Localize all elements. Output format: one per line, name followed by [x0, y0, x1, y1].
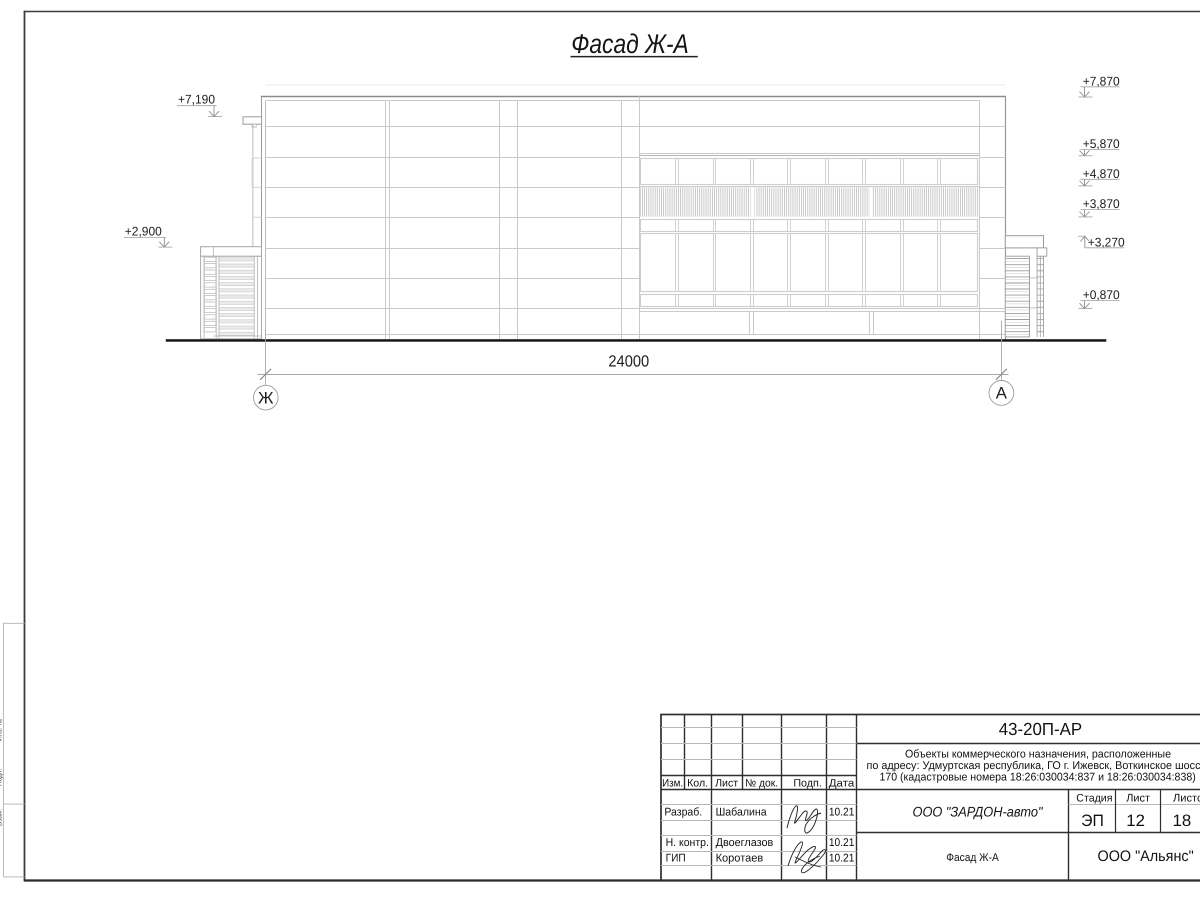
svg-text:Объекты коммерческого назначен: Объекты коммерческого назначения, распол… — [905, 749, 1171, 761]
svg-text:170 (кадастровые номера 18:26:: 170 (кадастровые номера 18:26:030034:837… — [879, 772, 1196, 784]
svg-text:Фасад Ж-А: Фасад Ж-А — [946, 852, 999, 864]
svg-text:24000: 24000 — [608, 352, 649, 370]
svg-text:Разраб.: Разраб. — [664, 807, 702, 819]
svg-text:18: 18 — [1173, 812, 1192, 830]
svg-text:ГИП: ГИП — [666, 852, 686, 864]
svg-text:Ж: Ж — [258, 388, 274, 407]
svg-text:10.21: 10.21 — [829, 852, 855, 864]
svg-text:Двоеглазов: Двоеглазов — [716, 837, 774, 849]
svg-text:Листов: Листов — [1173, 793, 1200, 805]
svg-text:Лист: Лист — [1126, 793, 1150, 805]
svg-text:Стадия: Стадия — [1076, 793, 1112, 805]
svg-text:+7,190: +7,190 — [178, 92, 215, 106]
svg-text:Фасад Ж-А: Фасад Ж-А — [571, 29, 689, 59]
svg-text:Шабалина: Шабалина — [716, 807, 768, 819]
svg-text:+4,870: +4,870 — [1083, 167, 1120, 181]
svg-text:Инв. №: Инв. № — [0, 719, 4, 741]
svg-text:10.21: 10.21 — [829, 837, 855, 849]
svg-text:№ док.: № док. — [745, 778, 778, 790]
svg-text:Коротаев: Коротаев — [716, 852, 764, 864]
svg-text:ООО "ЗАРДОН-авто": ООО "ЗАРДОН-авто" — [913, 803, 1044, 819]
svg-text:12: 12 — [1126, 812, 1145, 830]
svg-text:ЭП: ЭП — [1081, 812, 1104, 830]
svg-text:ООО "Альянс": ООО "Альянс" — [1098, 848, 1194, 865]
svg-text:Взам.: Взам. — [0, 809, 4, 826]
svg-text:+7,870: +7,870 — [1083, 74, 1120, 88]
svg-text:А: А — [996, 384, 1008, 403]
svg-text:+2,900: +2,900 — [125, 224, 162, 238]
svg-text:Дата: Дата — [829, 778, 855, 790]
svg-text:Н. контр.: Н. контр. — [666, 837, 709, 849]
svg-text:+0,870: +0,870 — [1083, 288, 1120, 302]
svg-text:+5,870: +5,870 — [1083, 137, 1120, 151]
svg-text:Подп.: Подп. — [793, 778, 822, 790]
svg-text:43-20П-АР: 43-20П-АР — [999, 719, 1082, 739]
svg-text:Подп.: Подп. — [0, 769, 4, 786]
svg-text:Кол.: Кол. — [687, 778, 708, 790]
svg-text:по адресу: Удмуртская республи: по адресу: Удмуртская республика, ГО г. … — [867, 760, 1200, 772]
svg-text:+3,870: +3,870 — [1083, 197, 1120, 211]
svg-text:10.21: 10.21 — [829, 807, 855, 819]
svg-text:+3,270: +3,270 — [1088, 235, 1125, 249]
svg-text:Изм.: Изм. — [662, 778, 683, 790]
svg-text:Лист: Лист — [715, 778, 738, 790]
